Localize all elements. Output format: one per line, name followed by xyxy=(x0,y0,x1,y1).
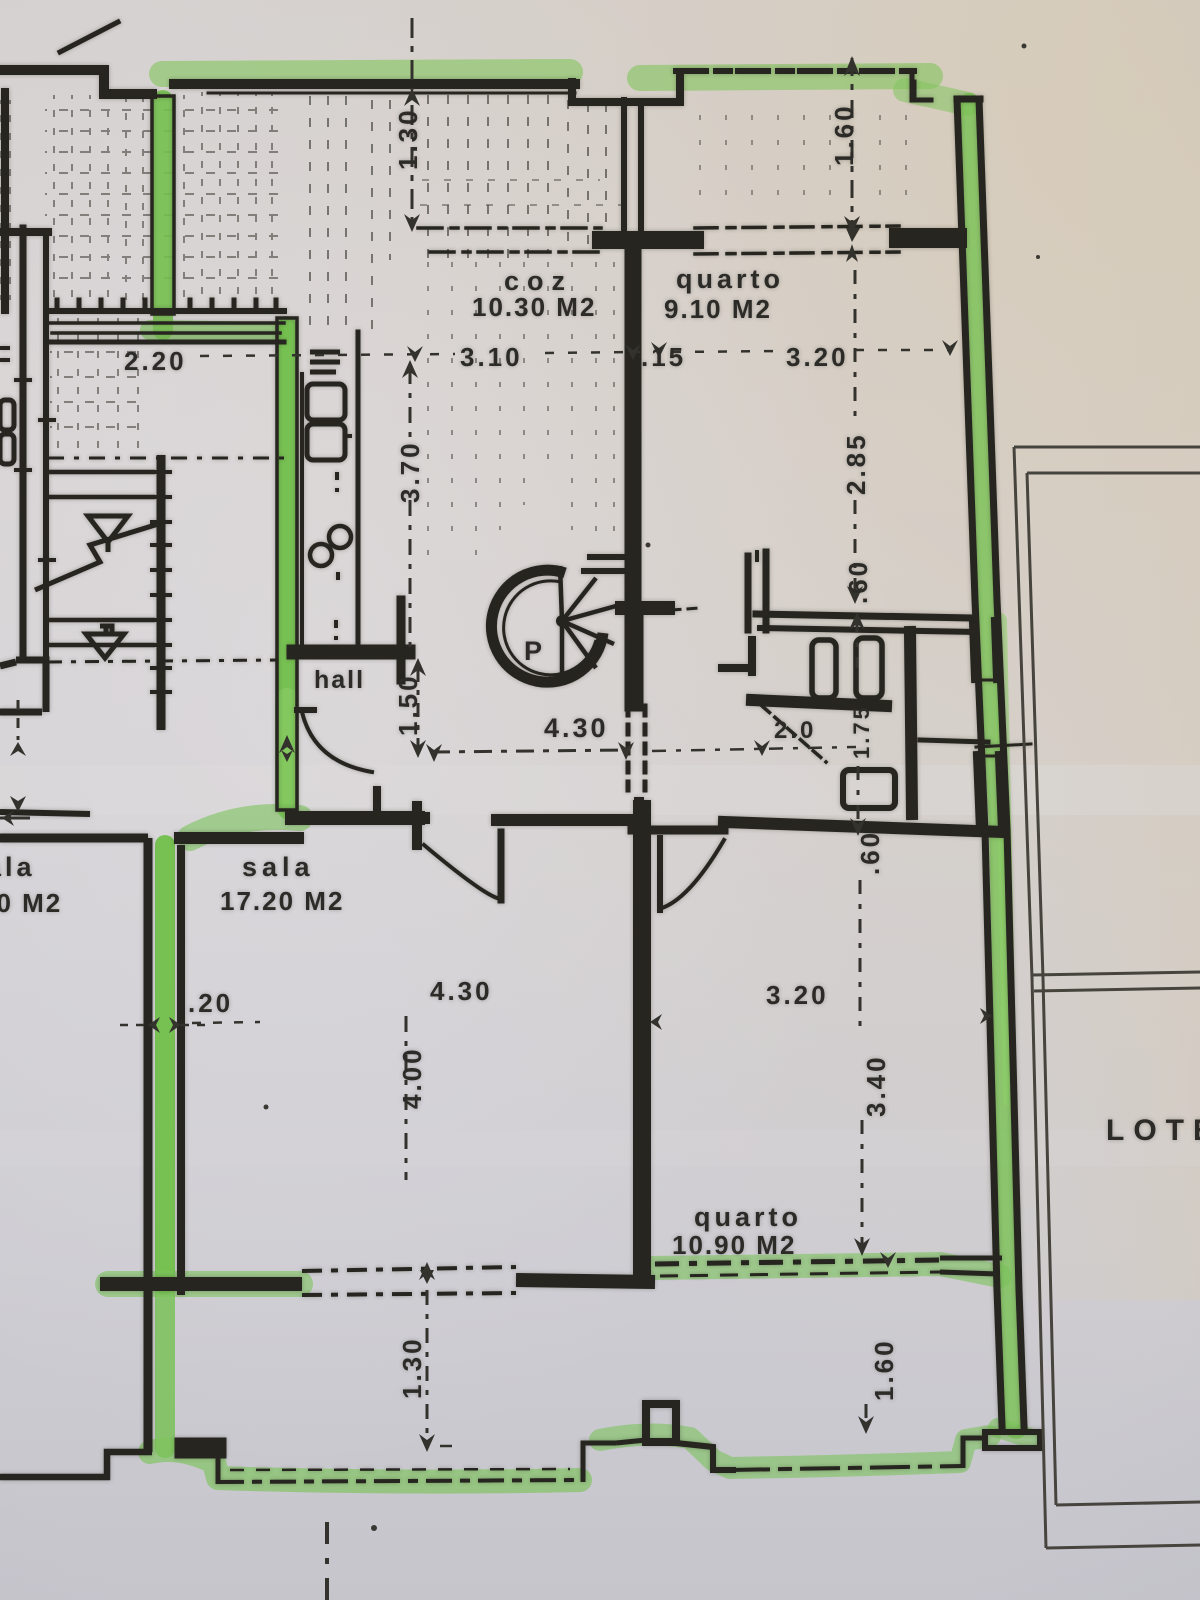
svg-text:1.75: 1.75 xyxy=(849,704,874,759)
svg-text:.60: .60 xyxy=(843,559,873,604)
svg-text:LOTE: LOTE xyxy=(1106,1114,1200,1147)
svg-text:3.20: 3.20 xyxy=(766,980,829,1010)
svg-text:hall: hall xyxy=(314,666,365,694)
svg-text:quarto: quarto xyxy=(694,1202,802,1232)
svg-text:1.60: 1.60 xyxy=(869,1338,899,1401)
svg-text:1.30: 1.30 xyxy=(397,1336,427,1399)
svg-text:1.50: 1.50 xyxy=(393,673,423,736)
svg-text:70 M2: 70 M2 xyxy=(0,888,62,918)
svg-text:.15: .15 xyxy=(641,342,686,372)
svg-text:1.60: 1.60 xyxy=(829,103,859,166)
svg-text:10.30 M2: 10.30 M2 xyxy=(472,292,596,322)
svg-text:.60: .60 xyxy=(855,830,885,875)
svg-text:4.30: 4.30 xyxy=(544,713,609,743)
svg-text:9.10 M2: 9.10 M2 xyxy=(664,294,772,324)
svg-text:P: P xyxy=(524,636,545,666)
svg-text:quarto: quarto xyxy=(676,264,784,294)
svg-text:3.40: 3.40 xyxy=(861,1054,891,1117)
svg-text:3.10: 3.10 xyxy=(460,342,523,372)
svg-text:4.30: 4.30 xyxy=(430,976,493,1006)
svg-text:2.85: 2.85 xyxy=(841,432,871,495)
svg-text:1.30: 1.30 xyxy=(393,107,423,170)
svg-text:4.00: 4.00 xyxy=(397,1046,427,1109)
svg-text:3.70: 3.70 xyxy=(395,440,425,503)
svg-text:17.20 M2: 17.20 M2 xyxy=(220,886,344,916)
svg-text:10.90 M2: 10.90 M2 xyxy=(672,1230,796,1260)
svg-text:2.20: 2.20 xyxy=(124,346,187,376)
svg-text:.20: .20 xyxy=(188,988,233,1018)
svg-text:sala: sala xyxy=(242,852,315,882)
svg-text:3.20: 3.20 xyxy=(786,342,849,372)
svg-text:2.0: 2.0 xyxy=(774,717,816,744)
svg-text:ala: ala xyxy=(0,852,36,882)
